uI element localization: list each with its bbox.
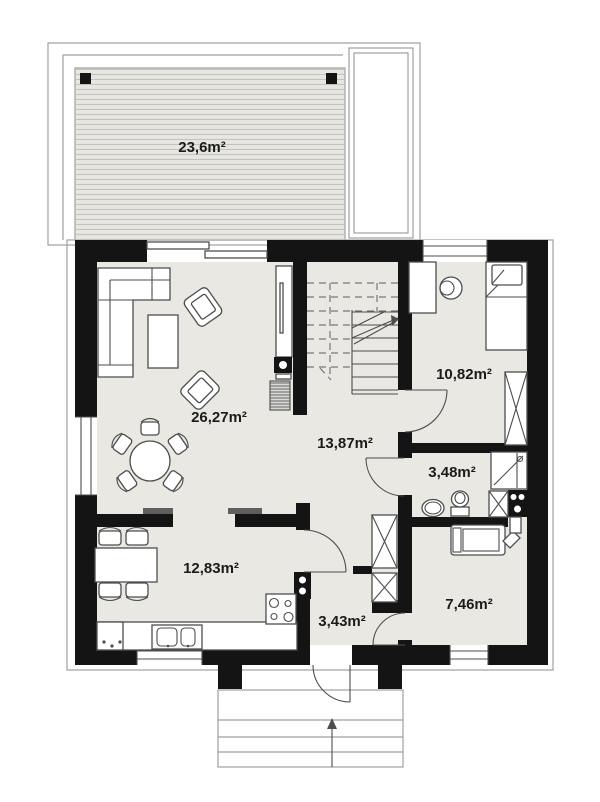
wall-top-1 — [75, 240, 147, 262]
room-label-utility: 7,46m² — [445, 596, 493, 613]
wall-living-kitchen-1 — [97, 514, 173, 527]
window-living-left — [75, 417, 97, 495]
room-label-terrace: 23,6m² — [178, 139, 226, 156]
room-label-living: 26,27m² — [191, 409, 247, 426]
terrace-post-left — [80, 73, 91, 84]
kitchen-sink — [152, 625, 202, 649]
wall-hall-bath-2 — [398, 495, 412, 600]
stove — [266, 594, 296, 624]
wall-top-2 — [267, 240, 423, 262]
entry-hall — [372, 515, 397, 602]
entrance-door — [310, 645, 352, 702]
room-label-kitchen: 12,83m² — [183, 560, 239, 577]
wall-pillar-kitchen — [296, 503, 310, 530]
coffee-table — [148, 315, 178, 368]
chimney-bathroom — [508, 490, 527, 517]
shower — [491, 452, 527, 489]
wall-entry-utility — [398, 640, 412, 665]
room-label-entry: 3,43m² — [318, 613, 366, 630]
entrance-steps — [218, 690, 403, 767]
room-label-hall: 13,87m² — [317, 435, 373, 452]
terrace-post-right — [326, 73, 337, 84]
lintel-bar-2 — [228, 508, 262, 514]
washbasin — [422, 500, 444, 517]
porch-pillar-left — [218, 665, 242, 689]
wall-hall-entry-stub — [353, 566, 372, 574]
pillow — [492, 265, 522, 285]
wardrobe-entry-2 — [372, 573, 397, 602]
desk-chair — [440, 277, 462, 299]
floor-plan-page: 23,6m² 26,27m² 13,87m² 10,82m² 3,48m² 12… — [0, 0, 600, 802]
washing-machine — [489, 491, 508, 517]
sliding-glass-door — [147, 242, 267, 258]
lintel-bar-1 — [143, 508, 173, 514]
terrace — [75, 48, 413, 240]
room-label-bedroom: 10,82m² — [436, 366, 492, 383]
wardrobe-bedroom — [505, 372, 527, 445]
dining-table — [130, 441, 170, 481]
toilet — [451, 491, 469, 516]
wardrobe-entry-1 — [372, 515, 397, 568]
kitchen-table — [95, 548, 157, 582]
tv-cabinet — [276, 266, 292, 357]
window-bedroom-top — [423, 240, 487, 262]
window-utility-bottom — [450, 645, 488, 665]
corner-cabinet — [97, 622, 123, 650]
wall-living-hall — [293, 262, 307, 415]
wall-bottom-4 — [488, 645, 527, 665]
porch-pillar-right — [378, 665, 402, 689]
terrace-side-panel — [349, 48, 413, 238]
room-label-bathroom: 3,48m² — [428, 464, 476, 481]
bed — [486, 262, 527, 350]
terrace-side-panel-inner — [354, 53, 408, 233]
desk — [409, 262, 436, 313]
wall-kitchen-entry — [296, 599, 310, 645]
stove-hatch — [270, 381, 290, 410]
boiler-flue-duct — [510, 517, 521, 533]
tv-screen — [280, 283, 283, 333]
wall-right — [527, 240, 548, 665]
floor-plan-svg: 23,6m² 26,27m² 13,87m² 10,82m² 3,48m² 12… — [0, 0, 600, 802]
